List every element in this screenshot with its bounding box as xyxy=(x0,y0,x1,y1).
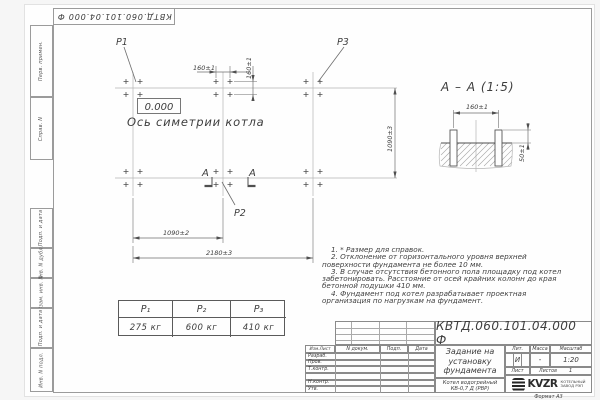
doc-number-rotated: КВТД.060.101.04.000 Ф xyxy=(57,12,172,21)
grid-line xyxy=(379,322,380,344)
notes-block: 1. * Размер для справок. 2. Отклонение о… xyxy=(322,246,572,304)
tb-row-label: Пров. xyxy=(308,360,322,365)
kvzr-logo-subtitle: КОТЕЛЬНЫЙ ЗАВОД РЭП xyxy=(561,380,586,389)
tb-row-razrab: Разраб. xyxy=(305,353,435,360)
tb-mass-label: Масса xyxy=(530,345,550,353)
strip-cell-sprav-n: Справ. N xyxy=(30,97,53,160)
grid-line xyxy=(351,322,352,344)
tb-lit-sub-1 xyxy=(506,354,513,366)
tb-column-line xyxy=(380,353,381,393)
doc-number-top-box: КВТД.060.101.04.000 Ф xyxy=(53,8,175,25)
tb-logo-cell: KVZR КОТЕЛЬНЫЙ ЗАВОД РЭП xyxy=(505,375,592,393)
strip-cell-inv-podl: Инв. N подл. xyxy=(30,348,53,392)
tb-row-label: Разраб. xyxy=(308,354,327,359)
tb-drawing-title: Задание на установку фундамента xyxy=(435,345,505,378)
tb-row-label: Утв. xyxy=(308,387,318,392)
tb-sheets-label: Листов xyxy=(539,369,557,374)
strip-cell-perv-primen: Перв. примен. xyxy=(30,25,53,97)
tb-row-nkontr: Н.контр. xyxy=(305,380,435,387)
load-table-header-p2: P₂ xyxy=(173,301,231,318)
tb-scale-value: 1:20 xyxy=(550,353,592,367)
note-3: 3. В случае отсутствия бетонного пола пл… xyxy=(322,268,572,290)
note-4: 4. Фундамент под котел разрабатывает про… xyxy=(322,290,572,305)
tb-product-name: Котел водогрейный КВ-0,7 Д (РВР) xyxy=(435,378,505,393)
strip-cell-inv-dubl: Инв. N дубл. xyxy=(30,248,53,278)
strip-label: Подп. и дата xyxy=(39,310,45,346)
tb-row-label: Н.контр. xyxy=(308,380,329,385)
kvzr-sub-line: ЗАВОД РЭП xyxy=(561,384,586,388)
tb-row-empty xyxy=(305,373,435,380)
tb-sheets-cell: Листов 1 xyxy=(530,367,592,375)
tb-header-n-dokum: N докум. xyxy=(335,345,380,353)
tb-product-line: КВ-0,7 Д (РВР) xyxy=(451,386,490,392)
tb-lit-value: И xyxy=(513,354,522,366)
tb-scale-label: Масштаб xyxy=(550,345,592,353)
tb-mass-value: - xyxy=(530,353,550,367)
load-table-value-p2: 600 кг xyxy=(173,318,231,337)
load-table-header-p1: P₁ xyxy=(119,301,173,318)
kvzr-logo-icon xyxy=(512,378,525,391)
tb-title-line: фундамента xyxy=(444,366,497,376)
revision-grid xyxy=(335,321,435,345)
tb-header-podp: Подп. xyxy=(380,345,408,353)
strip-label: Перв. примен. xyxy=(39,41,45,81)
tb-lit-value-cell: И xyxy=(505,353,530,367)
tb-row-prov: Пров. xyxy=(305,360,435,367)
strip-cell-vzam-inv: Взам. инв. N xyxy=(30,278,53,308)
tb-header-data: Дата xyxy=(408,345,435,353)
strip-label: Подп. и дата xyxy=(39,210,45,246)
strip-label: Справ. N xyxy=(39,116,45,140)
tb-sheets-value: 1 xyxy=(569,368,573,374)
load-table-header-p3: P₃ xyxy=(231,301,286,318)
tb-sheet-label: Лист xyxy=(505,367,530,375)
tb-lit-label: Лит. xyxy=(505,345,530,353)
tb-title-line: Задание на xyxy=(446,347,495,357)
kvzr-logo-text: KVZR xyxy=(528,378,558,390)
strip-label: Взам. инв. N xyxy=(39,276,45,311)
tb-column-line xyxy=(408,353,409,393)
drawing-sheet: КВТД.060.101.04.000 Ф Перв. примен. Спра… xyxy=(0,0,600,400)
tb-title-line: установку xyxy=(448,357,491,367)
grid-line xyxy=(406,322,407,344)
strip-cell-podp-data-1: Подп. и дата xyxy=(30,208,53,248)
tb-column-line xyxy=(335,353,336,393)
tb-row-tkontr: Т.контр. xyxy=(305,366,435,373)
load-table-value-p1: 275 кг xyxy=(119,318,173,337)
tb-header-izm-list: Изм.Лист xyxy=(305,345,335,353)
tb-row-label: Т.контр. xyxy=(308,367,329,372)
load-table: P₁ P₂ P₃ 275 кг 600 кг 410 кг xyxy=(118,300,285,336)
tb-lit-sub-3 xyxy=(522,354,529,366)
load-table-value-p3: 410 кг xyxy=(231,318,286,337)
note-2: 2. Отклонение от горизонтального уровня … xyxy=(322,253,572,268)
title-block-doc-number: КВТД.060.101.04.000 Ф xyxy=(435,321,592,345)
strip-label: Инв. N подл. xyxy=(39,352,45,387)
tb-row-utv: Утв. xyxy=(305,386,435,393)
format-label: Формат А3 xyxy=(505,394,592,400)
strip-cell-podp-data-2: Подп. и дата xyxy=(30,308,53,348)
